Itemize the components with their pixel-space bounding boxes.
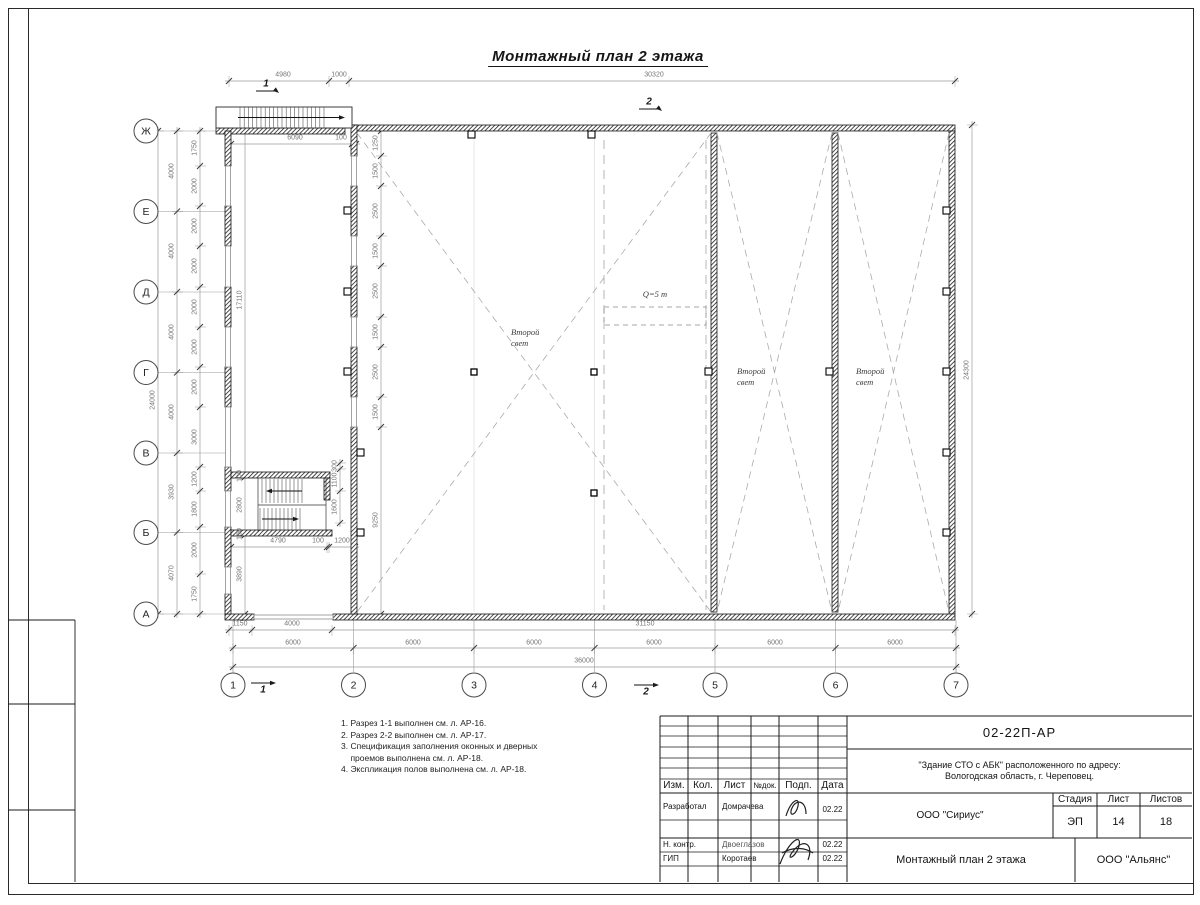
drawing-title: Монтажный план 2 этажа [488, 48, 708, 67]
dim-label: 24300 [964, 360, 971, 379]
axis-bubble-label: Е [142, 206, 149, 218]
dim-label: 2500 [373, 364, 380, 380]
dim-label: 300 [332, 460, 339, 472]
dim-label: 4070 [169, 565, 176, 581]
dim-label: 1000 [331, 72, 347, 79]
dim-label: 2000 [192, 379, 199, 395]
second-light-label: Второй [856, 366, 884, 377]
section-mark-label: 2 [643, 687, 649, 698]
dim-label: 6090 [287, 135, 303, 142]
second-light-label: свет [856, 377, 884, 388]
dim-label: 100 [335, 135, 347, 142]
titleblock-role-ncontrol: Н. контр. [660, 838, 718, 852]
section-mark-label: 1 [260, 685, 266, 696]
titleblock-role-gip: ГИП [660, 852, 718, 866]
titleblock-sheets-header: Листов [1140, 793, 1192, 806]
dim-label: 2000 [192, 178, 199, 194]
dim-label: 2000 [192, 339, 199, 355]
dim-label: 2500 [373, 203, 380, 219]
axis-bubble-label: 1 [230, 680, 236, 692]
dim-label: 3000 [192, 429, 199, 445]
dim-label: 6000 [887, 640, 903, 647]
titleblock-col-kol: Кол. [688, 779, 718, 793]
dim-label: 100 [237, 470, 244, 482]
titleblock-sheet-header: Лист [1097, 793, 1140, 806]
dim-label: 2000 [192, 299, 199, 315]
dim-label: 1200 [192, 471, 199, 487]
dim-label: 2800 [237, 497, 244, 513]
titleblock-object-address: "Здание СТО с АБК" расположенного по адр… [847, 749, 1192, 793]
note-line: 2. Разрез 2-2 выполнен см. л. АР-17. [341, 730, 537, 742]
dim-label: 1800 [192, 501, 199, 517]
dim-label: 1500 [373, 324, 380, 340]
axis-bubble-label: 7 [953, 680, 959, 692]
dim-label: 1250 [373, 135, 380, 151]
axis-bubble-label: 5 [712, 680, 718, 692]
titleblock-org-design: ООО "Сириус" [847, 793, 1053, 838]
dim-label: 4790 [270, 538, 286, 545]
dim-label: 2000 [192, 542, 199, 558]
dim-label: 3890 [237, 566, 244, 582]
section-mark-label: 1 [263, 79, 269, 90]
second-light: Второйсвет [856, 366, 884, 387]
dim-label: 6000 [646, 640, 662, 647]
axis-bubble-label: Г [143, 367, 149, 379]
dim-label: 4000 [284, 621, 300, 628]
second-light-label: свет [511, 338, 539, 349]
titleblock-object-line2: Вологодская область, г. Череповец. [945, 771, 1094, 782]
dim-label: 2000 [192, 258, 199, 274]
axis-bubble-label: Д [142, 287, 149, 299]
dim-label: 6000 [405, 640, 421, 647]
axis-bubble-label: В [142, 448, 149, 460]
crane-capacity-label: Q=5 т [643, 289, 667, 299]
dim-label: 1500 [373, 404, 380, 420]
titleblock-date-gip: 02.22 [818, 852, 847, 866]
titleblock-date-ncontrol: 02.22 [818, 838, 847, 852]
dim-label: 2500 [373, 283, 380, 299]
titleblock-col-podp: Подп. [779, 779, 818, 793]
axis-bubble-label: 4 [592, 680, 598, 692]
dim-label: 30320 [644, 72, 663, 79]
titleblock-sheet-value: 14 [1097, 806, 1140, 838]
titleblock-name-ncontrol: Двоеглазов [719, 838, 779, 852]
dim-label: 17110 [237, 291, 244, 310]
titleblock-col-izm: Изм. [660, 779, 688, 793]
note-line: проемов выполнена см. л. АР-18. [341, 753, 537, 765]
dim-label: 1500 [373, 243, 380, 259]
dim-label: 4000 [169, 243, 176, 259]
titleblock-date-developer: 02.22 [818, 803, 847, 817]
dim-label: 36000 [574, 658, 593, 665]
note-line: 4. Экспликация полов выполнена см. л. АР… [341, 764, 537, 776]
dim-label: 100 [237, 528, 244, 540]
second-light-label: Второй [511, 327, 539, 338]
dim-label: 1200 [334, 538, 350, 545]
titleblock-role-developer: Разработал [660, 800, 718, 814]
axis-bubble-label: 2 [351, 680, 357, 692]
titleblock-name-gip: Коротаев [719, 852, 779, 866]
notes-block: 1. Разрез 1-1 выполнен см. л. АР-16. 2. … [341, 718, 537, 776]
dim-label: 6000 [285, 640, 301, 647]
dim-label: 1500 [373, 163, 380, 179]
second-light-label: Второй [737, 366, 765, 377]
dim-label: 6000 [767, 640, 783, 647]
dim-label: 24000 [150, 390, 157, 409]
dim-label: 9250 [373, 512, 380, 528]
dim-label: 3930 [169, 484, 176, 500]
titleblock-doc-code: 02-22П-АР [847, 716, 1192, 749]
section-mark-label: 2 [646, 97, 652, 108]
dim-label: 4980 [275, 72, 291, 79]
dim-label: 31150 [636, 621, 655, 628]
dim-label: 6000 [526, 640, 542, 647]
titleblock-col-list: Лист [718, 779, 751, 793]
dim-label: 4000 [169, 163, 176, 179]
dim-label: 4000 [169, 324, 176, 340]
dim-label: 1150 [232, 621, 247, 628]
note-line: 1. Разрез 1-1 выполнен см. л. АР-16. [341, 718, 537, 730]
second-light-label: свет [737, 377, 765, 388]
titleblock-sheet-title: Монтажный план 2 этажа [847, 838, 1075, 882]
titleblock-stage-header: Стадия [1053, 793, 1097, 806]
dim-label: 100 [312, 538, 324, 545]
dim-label: 4000 [169, 404, 176, 420]
dim-label: 1600 [332, 499, 339, 515]
axis-bubble-label: 3 [471, 680, 477, 692]
axis-bubble-label: Ж [141, 126, 151, 138]
titleblock-name-developer: Домрачева [719, 800, 779, 814]
dim-label: 1750 [192, 586, 199, 602]
axis-bubble-label: А [142, 609, 149, 621]
titleblock-col-ndok: №док. [751, 779, 779, 793]
drawing-sheet: { "title": "Монтажный план 2 этажа", "la… [0, 0, 1200, 900]
dim-label: 1100 [332, 472, 339, 487]
dim-label: 1750 [192, 140, 199, 156]
titleblock-sheets-value: 18 [1140, 806, 1192, 838]
titleblock-object-line1: "Здание СТО с АБК" расположенного по адр… [918, 760, 1120, 771]
second-light: Второйсвет [737, 366, 765, 387]
axis-bubble-label: 6 [833, 680, 839, 692]
second-light: Второйсвет [511, 327, 539, 348]
axis-bubble-label: Б [143, 527, 150, 539]
titleblock-stage-value: ЭП [1053, 806, 1097, 838]
titleblock-org: ООО "Альянс" [1075, 838, 1192, 882]
note-line: 3. Спецификация заполнения оконных и две… [341, 741, 537, 753]
dim-label: 2000 [192, 218, 199, 234]
titleblock-col-data: Дата [818, 779, 847, 793]
